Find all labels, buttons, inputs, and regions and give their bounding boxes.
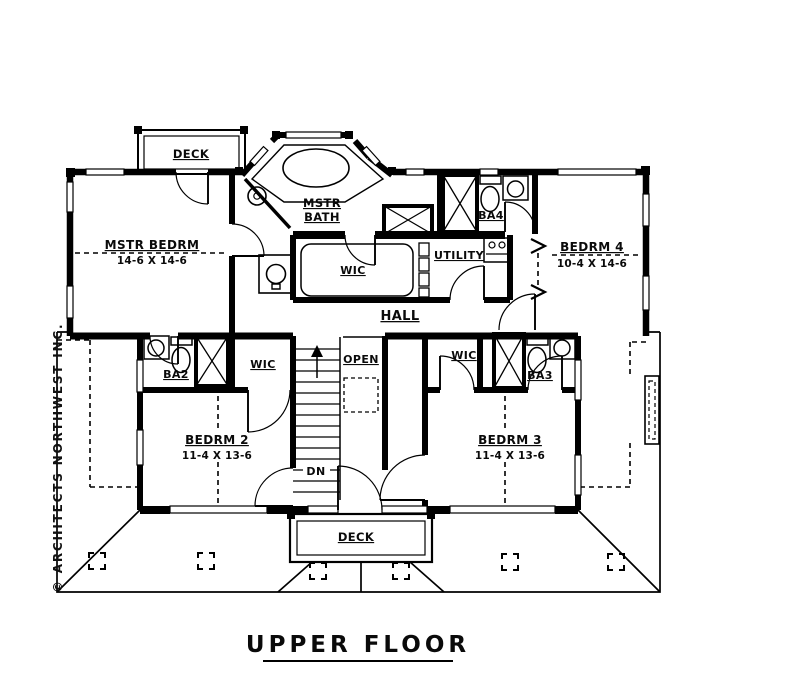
bath2-label: BA2: [163, 368, 189, 381]
hall-label: HALL: [380, 309, 419, 324]
plan-title-text: UPPER FLOOR: [246, 632, 470, 658]
toilet: [267, 265, 286, 284]
windows: [67, 132, 649, 513]
bedroom4-dims: 10-4 X 14-6: [557, 258, 627, 270]
toilet: [481, 187, 499, 212]
toilet-tank: [480, 176, 501, 184]
washer-dryer: [484, 238, 510, 262]
walls: [68, 135, 649, 510]
floor-plan-page: DECK MSTR BEDRM 14-6 X 14-6 MSTR BATH WI…: [0, 0, 800, 698]
wic2-label: WIC: [250, 358, 276, 371]
wic3-label: WIC: [451, 349, 477, 362]
water-closet: [259, 255, 293, 293]
bedroom3-label: BEDRM 3: [478, 433, 542, 447]
master-bath-label-2: BATH: [304, 210, 340, 224]
dashed-lines: [57, 253, 646, 505]
utility-label: UTILITY: [434, 249, 485, 262]
chimney: [645, 376, 659, 444]
master-bedroom-label: MSTR BEDRM: [105, 238, 200, 252]
cased-opening-jambs: [531, 239, 545, 299]
bathtub: [283, 149, 349, 187]
plan-title: UPPER FLOOR: [246, 632, 470, 661]
open-label: OPEN: [343, 353, 379, 366]
deck-top-label: DECK: [173, 147, 210, 161]
bedroom2-dims: 11-4 X 13-6: [182, 450, 252, 462]
master-bath-label-1: MSTR: [303, 196, 341, 210]
bath3-label: BA3: [527, 369, 553, 382]
dn-label: DN: [306, 465, 325, 478]
copyright-text: © ARCHITECTS NORTHWEST INC.: [51, 323, 65, 593]
bedroom3-dims: 11-4 X 13-6: [475, 450, 545, 462]
master-bedroom-dims: 14-6 X 14-6: [117, 255, 187, 267]
deck-bottom-label: DECK: [338, 530, 375, 544]
stair-direction-arrow: [311, 345, 323, 357]
master-wic-label: WIC: [340, 264, 366, 277]
bedroom4-label: BEDRM 4: [560, 240, 624, 254]
bath4-label: BA4: [478, 209, 504, 222]
bedroom2-label: BEDRM 2: [185, 433, 249, 447]
floor-plan-drawing: DECK MSTR BEDRM 14-6 X 14-6 MSTR BATH WI…: [0, 0, 800, 698]
utility-fixtures: [419, 238, 510, 297]
